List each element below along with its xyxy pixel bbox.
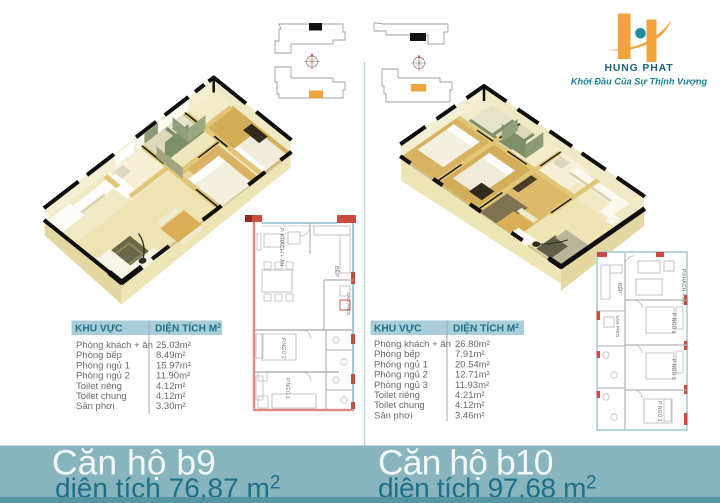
svg-text:P.KHÁCH + ĂN: P.KHÁCH + ĂN: [680, 269, 687, 305]
svg-text:SÂN PHƠI: SÂN PHƠI: [615, 315, 621, 337]
svg-text:3.46m²: 3.46m²: [455, 410, 485, 421]
svg-text:BẾP: BẾP: [616, 283, 623, 294]
svg-text:P. KHÁCH + ĂN: P. KHÁCH + ĂN: [278, 228, 285, 267]
svg-text:SÂN PHƠI: SÂN PHƠI: [345, 292, 352, 315]
svg-text:Sân phơi: Sân phơi: [374, 410, 412, 421]
svg-text:DIỆN TÍCH M2: DIỆN TÍCH M2: [155, 322, 221, 335]
svg-text:P NGỦ 3: P NGỦ 3: [670, 359, 677, 380]
svg-text:BẾP: BẾP: [333, 266, 340, 277]
svg-text:P.NGỦ 2: P.NGỦ 2: [280, 338, 287, 359]
svg-text:Sân phơi: Sân phơi: [76, 401, 114, 412]
svg-text:P NGỦ 1: P NGỦ 1: [656, 401, 663, 422]
svg-text:KHU VỰC: KHU VỰC: [75, 324, 123, 335]
svg-text:P NGỦ 2: P NGỦ 2: [670, 313, 677, 334]
svg-text:3.30m²: 3.30m²: [156, 401, 186, 412]
svg-text:P.NGỦ 1: P.NGỦ 1: [284, 378, 291, 399]
svg-text:HUNG PHAT: HUNG PHAT: [604, 63, 673, 74]
svg-text:KHU VỰC: KHU VỰC: [374, 324, 422, 335]
svg-text:Khởi Đầu Của Sự Thịnh Vượng: Khởi Đầu Của Sự Thịnh Vượng: [571, 77, 708, 87]
svg-text:DIỆN TÍCH M2: DIỆN TÍCH M2: [453, 322, 519, 335]
